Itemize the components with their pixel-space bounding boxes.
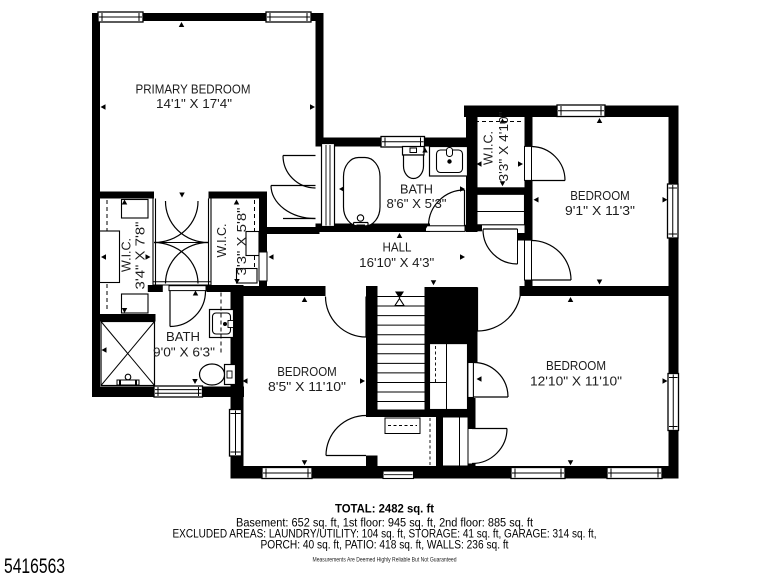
svg-text:9'0" X 6'3": 9'0" X 6'3" [153,346,215,360]
svg-text:W.I.C.: W.I.C. [482,131,496,165]
svg-text:W.I.C.: W.I.C. [120,238,134,272]
svg-text:8'6" X 5'3": 8'6" X 5'3" [387,197,447,211]
svg-text:BEDROOM: BEDROOM [570,189,630,203]
svg-text:14'1" X 17'4": 14'1" X 17'4" [156,97,232,111]
svg-text:HALL: HALL [383,241,412,255]
svg-text:PORCH: 40 sq. ft, PATIO: 418 s: PORCH: 40 sq. ft, PATIO: 418 sq. ft, WAL… [261,540,510,552]
svg-text:W.I.C.: W.I.C. [215,224,229,258]
svg-text:3'3" X 5'8": 3'3" X 5'8" [235,208,249,276]
svg-text:8'5" X 11'10": 8'5" X 11'10" [268,380,346,394]
svg-text:TOTAL: 2482 sq. ft: TOTAL: 2482 sq. ft [335,502,434,516]
svg-text:Measurements Are Deemed Highly: Measurements Are Deemed Highly Reliable … [313,558,457,564]
svg-text:BEDROOM: BEDROOM [546,359,606,373]
svg-text:BATH: BATH [400,183,433,197]
svg-text:16'10" X 4'3": 16'10" X 4'3" [359,256,434,270]
svg-text:BEDROOM: BEDROOM [277,365,337,379]
svg-text:PRIMARY BEDROOM: PRIMARY BEDROOM [136,83,251,97]
svg-text:9'1" X 11'3": 9'1" X 11'3" [565,204,635,218]
svg-text:5416563: 5416563 [4,554,65,576]
svg-text:BATH: BATH [166,330,200,344]
svg-text:12'10" X 11'10": 12'10" X 11'10" [530,374,622,388]
svg-text:3'4" X 7'8": 3'4" X 7'8" [134,222,148,290]
svg-text:Basement: 652 sq. ft, 1st floo: Basement: 652 sq. ft, 1st floor: 945 sq.… [236,517,534,529]
svg-text:3'3" X 4'10": 3'3" X 4'10" [497,112,511,182]
